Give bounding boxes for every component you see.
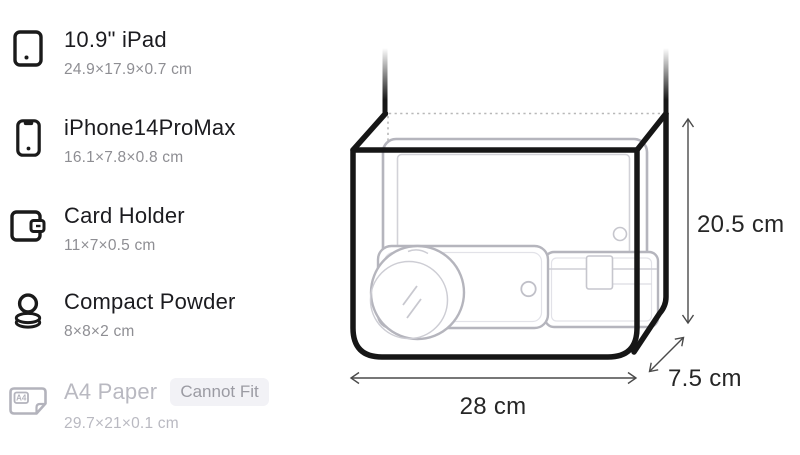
bag-straps [383, 48, 669, 116]
ghost-card-holder [545, 252, 658, 327]
height-dimension-arrow [683, 119, 694, 323]
width-dimension-arrow [351, 373, 636, 384]
width-dimension-label: 28 cm [433, 393, 553, 421]
ghost-compact-powder [371, 246, 465, 339]
depth-dimension-label: 7.5 cm [668, 365, 742, 393]
height-dimension-label: 20.5 cm [697, 211, 784, 239]
